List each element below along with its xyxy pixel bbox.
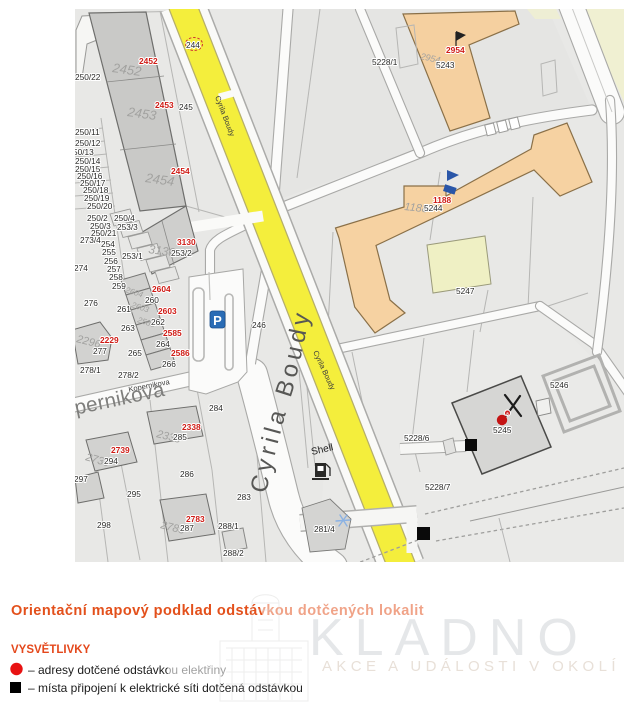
svg-text:285: 285 (173, 432, 187, 442)
svg-text:263: 263 (121, 323, 135, 333)
svg-text:2783: 2783 (186, 514, 205, 524)
svg-text:– místa připojení k elektrické: – místa připojení k elektrické síti dotč… (28, 681, 303, 695)
svg-text:288/2: 288/2 (223, 548, 244, 558)
svg-text:266: 266 (162, 359, 176, 369)
svg-text:278/1: 278/1 (80, 365, 101, 375)
svg-text:294: 294 (104, 456, 118, 466)
svg-text:VYSVĚTLIVKY: VYSVĚTLIVKY (11, 643, 91, 656)
svg-text:5247: 5247 (456, 286, 475, 296)
svg-text:2585: 2585 (163, 328, 182, 338)
svg-text:2453: 2453 (155, 100, 174, 110)
svg-text:260: 260 (145, 295, 159, 305)
svg-text:250/22: 250/22 (75, 72, 101, 82)
svg-text:5243: 5243 (436, 60, 455, 70)
svg-text:253/1: 253/1 (122, 251, 143, 261)
svg-text:295: 295 (127, 489, 141, 499)
svg-text:274: 274 (74, 263, 88, 273)
svg-text:250/20: 250/20 (87, 201, 113, 211)
svg-text:2454: 2454 (171, 166, 190, 176)
svg-text:297: 297 (74, 474, 88, 484)
svg-text:5228/6: 5228/6 (404, 433, 430, 443)
svg-text:273/4: 273/4 (80, 235, 101, 245)
svg-text:283: 283 (237, 492, 251, 502)
svg-text:245: 245 (179, 102, 193, 112)
svg-text:5245: 5245 (493, 425, 512, 435)
svg-text:259: 259 (112, 281, 126, 291)
svg-text:246: 246 (252, 320, 266, 330)
svg-text:250/11: 250/11 (75, 127, 100, 137)
svg-text:262: 262 (151, 317, 165, 327)
svg-text:2452: 2452 (139, 56, 158, 66)
svg-text:277: 277 (93, 346, 107, 356)
svg-text:2739: 2739 (111, 445, 130, 455)
svg-text:2338: 2338 (182, 422, 201, 432)
svg-text:298: 298 (97, 520, 111, 530)
svg-text:P: P (213, 313, 222, 328)
svg-text:2954: 2954 (446, 45, 465, 55)
svg-text:1188: 1188 (433, 195, 452, 205)
svg-text:261: 261 (117, 304, 131, 314)
svg-text:264: 264 (156, 339, 170, 349)
svg-text:244: 244 (186, 40, 200, 50)
svg-text:2229: 2229 (100, 335, 119, 345)
svg-text:3130: 3130 (177, 237, 196, 247)
svg-text:265: 265 (128, 348, 142, 358)
svg-text:AKCE A UDÁLOSTI V OKOLÍ: AKCE A UDÁLOSTI V OKOLÍ (322, 658, 620, 675)
svg-text:276: 276 (84, 298, 98, 308)
svg-text:281/4: 281/4 (314, 524, 335, 534)
svg-text:2603: 2603 (158, 306, 177, 316)
svg-text:286: 286 (180, 469, 194, 479)
svg-text:253/3: 253/3 (117, 222, 138, 232)
svg-text:5228/7: 5228/7 (425, 482, 451, 492)
svg-text:253/2: 253/2 (171, 248, 192, 258)
svg-text:2604: 2604 (152, 284, 171, 294)
svg-text:284: 284 (209, 403, 223, 413)
svg-text:5228/1: 5228/1 (372, 57, 398, 67)
svg-text:5246: 5246 (550, 380, 569, 390)
svg-text:2586: 2586 (171, 348, 190, 358)
svg-text:287: 287 (180, 523, 194, 533)
svg-text:278/2: 278/2 (118, 370, 139, 380)
svg-text:288/1: 288/1 (218, 521, 239, 531)
